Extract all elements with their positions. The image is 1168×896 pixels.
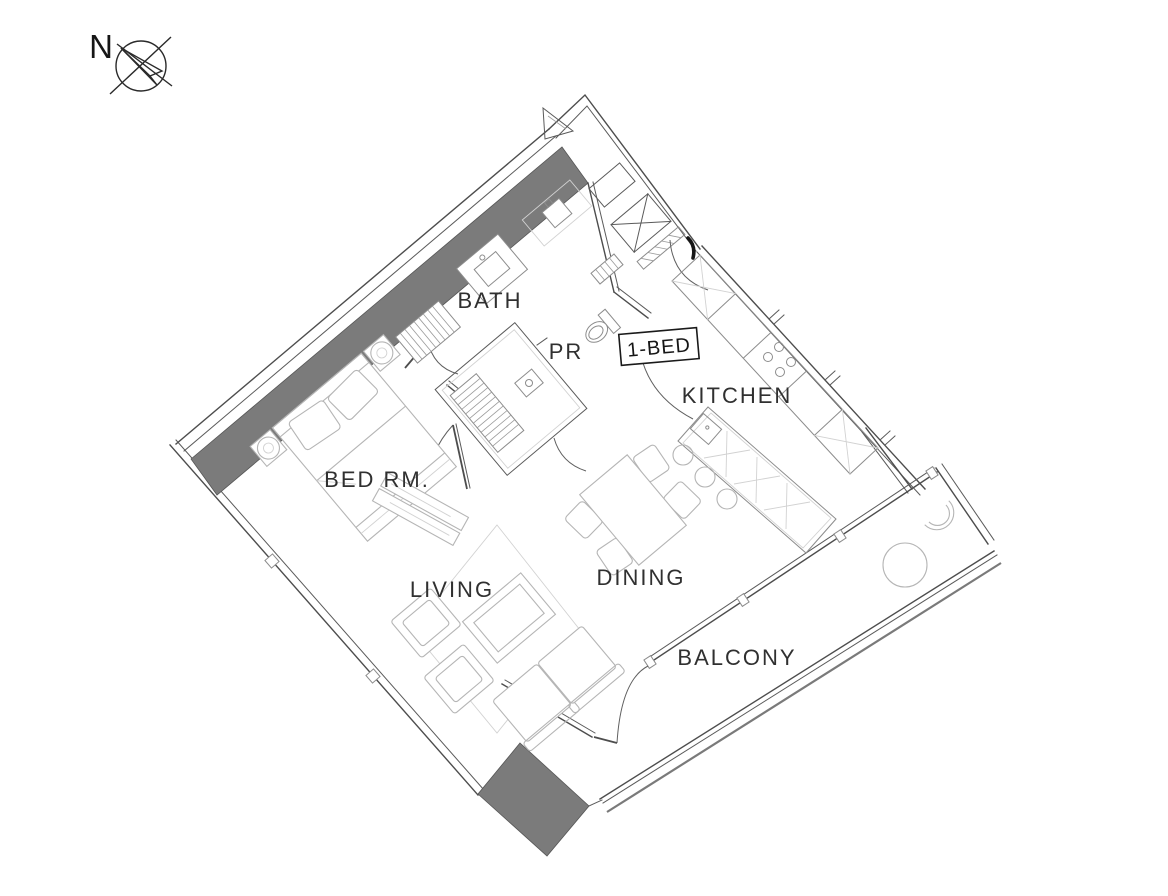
dining-label: DINING [597, 565, 686, 590]
dining-table [580, 455, 687, 565]
floor-plan-canvas: N BATH PR KITCHEN BED RM. LIVING DINING … [0, 0, 1168, 896]
balcony-table [883, 543, 927, 587]
north-compass-icon [110, 37, 172, 94]
bedroom-furniture [250, 335, 478, 560]
balcony-label: BALCONY [677, 645, 796, 670]
powder-room-fixtures [450, 309, 620, 452]
column-fill [478, 743, 589, 856]
floor-plan-drawing: N BATH PR KITCHEN BED RM. LIVING DINING … [0, 0, 1168, 896]
living-furniture [391, 525, 626, 752]
north-label: N [89, 28, 113, 65]
dining-set [559, 437, 708, 583]
bar-stool [695, 467, 715, 487]
toilet [580, 309, 621, 349]
towel-radiator [591, 254, 623, 284]
bath-label: BATH [457, 288, 522, 313]
armchair [424, 644, 495, 714]
kitchen-island [673, 407, 836, 553]
kitchen-label: KITCHEN [682, 383, 793, 408]
bar-stool [673, 445, 693, 465]
bar-stool [717, 489, 737, 509]
pr-sink [515, 369, 543, 397]
room-labels: N BATH PR KITCHEN BED RM. LIVING DINING … [89, 28, 797, 670]
door-stop-mark [688, 238, 694, 258]
living-label: LIVING [410, 577, 494, 602]
balcony-furniture [883, 501, 961, 587]
balcony-chair [925, 501, 961, 537]
powder-room-label: PR [549, 339, 584, 364]
bedroom-label: BED RM. [324, 467, 430, 492]
unit-type-tag: 1-BED [619, 328, 699, 366]
